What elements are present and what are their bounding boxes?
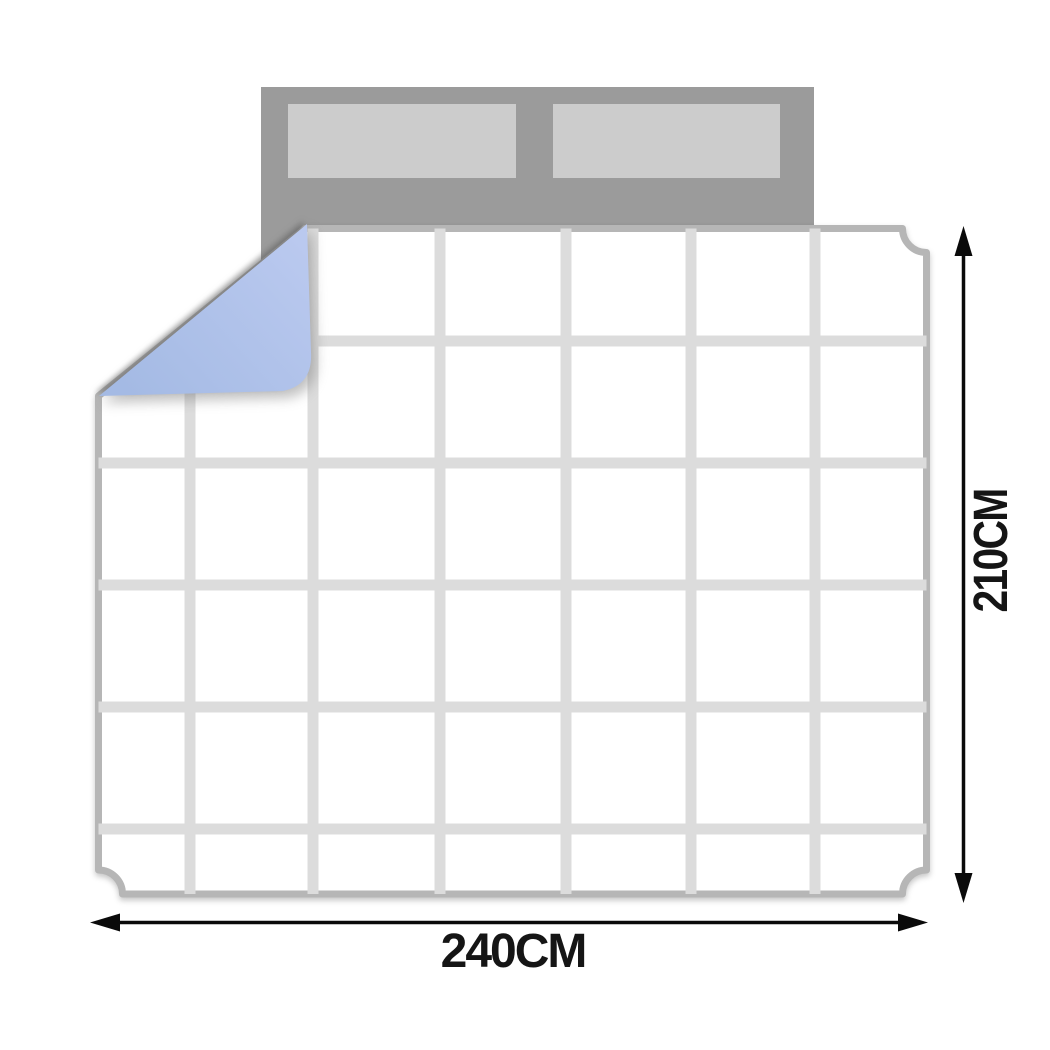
width-dimension-label: 240CM [441, 928, 586, 976]
grid-hline [95, 824, 930, 835]
bedding-size-diagram: 210CM 240CM [0, 0, 1050, 1050]
grid-vline [810, 225, 821, 898]
grid-hline [95, 458, 930, 469]
diagram-canvas [0, 0, 1050, 1050]
pillow-right [553, 104, 780, 178]
arrow-left-icon [90, 914, 120, 932]
grid-hline [95, 702, 930, 713]
arrow-up-icon [955, 226, 973, 256]
height-dimension-label: 210CM [968, 489, 1016, 612]
arrow-down-icon [955, 873, 973, 903]
grid-vline [561, 225, 572, 898]
grid-vline [435, 225, 446, 898]
arrow-right-icon [898, 914, 928, 932]
grid-hline [95, 580, 930, 591]
grid-vline [686, 225, 697, 898]
pillow-left [288, 104, 516, 178]
folded-corner [99, 224, 311, 396]
